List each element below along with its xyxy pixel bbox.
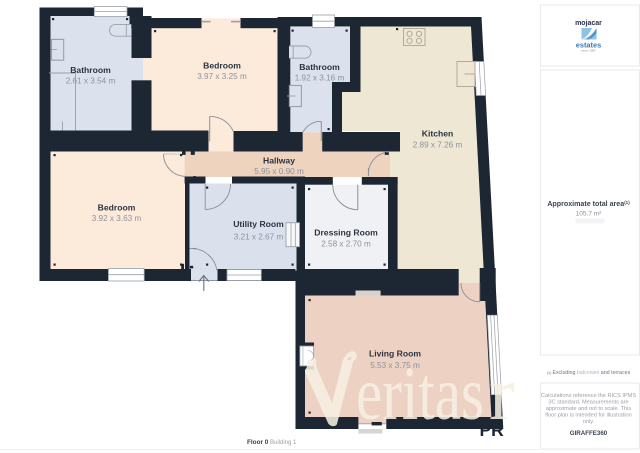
svg-text:PR: PR bbox=[480, 420, 505, 440]
svg-text:3.97 x 3.25 m: 3.97 x 3.25 m bbox=[197, 72, 247, 81]
svg-text:5.95 x 0.90 m: 5.95 x 0.90 m bbox=[254, 167, 304, 176]
svg-text:Hallway: Hallway bbox=[263, 156, 295, 166]
svg-text:Utility Room: Utility Room bbox=[233, 219, 284, 229]
svg-text:Bedroom: Bedroom bbox=[98, 203, 136, 213]
svg-text:Bathroom: Bathroom bbox=[70, 65, 111, 75]
svg-text:Building 1: Building 1 bbox=[270, 440, 297, 446]
svg-text:(1) Excluding balconies and te: (1) Excluding balconies and terraces bbox=[547, 370, 631, 376]
svg-text:Floor 0: Floor 0 bbox=[247, 439, 269, 446]
svg-text:Bedroom: Bedroom bbox=[203, 61, 241, 71]
svg-text:Calculations reference the RIC: Calculations reference the RICS IPMS bbox=[541, 393, 636, 399]
svg-text:Bathroom: Bathroom bbox=[299, 62, 340, 72]
svg-text:105.7 m²: 105.7 m² bbox=[576, 211, 602, 218]
svg-text:2.61 x 3.54 m: 2.61 x 3.54 m bbox=[66, 77, 116, 86]
svg-text:2.58 x 2.70 m: 2.58 x 2.70 m bbox=[321, 240, 371, 249]
svg-text:Dressing Room: Dressing Room bbox=[314, 228, 378, 238]
svg-text:3.21 x 2.67 m: 3.21 x 2.67 m bbox=[234, 233, 284, 242]
svg-text:floor plan is intended for ill: floor plan is intended for illustration bbox=[545, 413, 631, 419]
svg-text:Kitchen: Kitchen bbox=[422, 129, 454, 139]
svg-text:3.92 x 3.63 m: 3.92 x 3.63 m bbox=[92, 214, 142, 223]
svg-text:approximate and not to scale.: approximate and not to scale. This bbox=[546, 406, 632, 412]
svg-text:3C standard. Measurements are: 3C standard. Measurements are bbox=[548, 400, 628, 406]
svg-text:GIRAFFE360: GIRAFFE360 bbox=[570, 430, 608, 437]
svg-text:mojacar: mojacar bbox=[575, 20, 602, 27]
svg-text:since 1982: since 1982 bbox=[581, 49, 596, 53]
svg-text:Approximate total area(1): Approximate total area(1) bbox=[547, 200, 630, 208]
svg-text:only.: only. bbox=[583, 419, 595, 425]
svg-text:2.89 x 7.26 m: 2.89 x 7.26 m bbox=[413, 141, 463, 150]
svg-text:1.92 x 3.16 m: 1.92 x 3.16 m bbox=[295, 74, 345, 83]
svg-text:eritas: eritas bbox=[356, 352, 484, 436]
